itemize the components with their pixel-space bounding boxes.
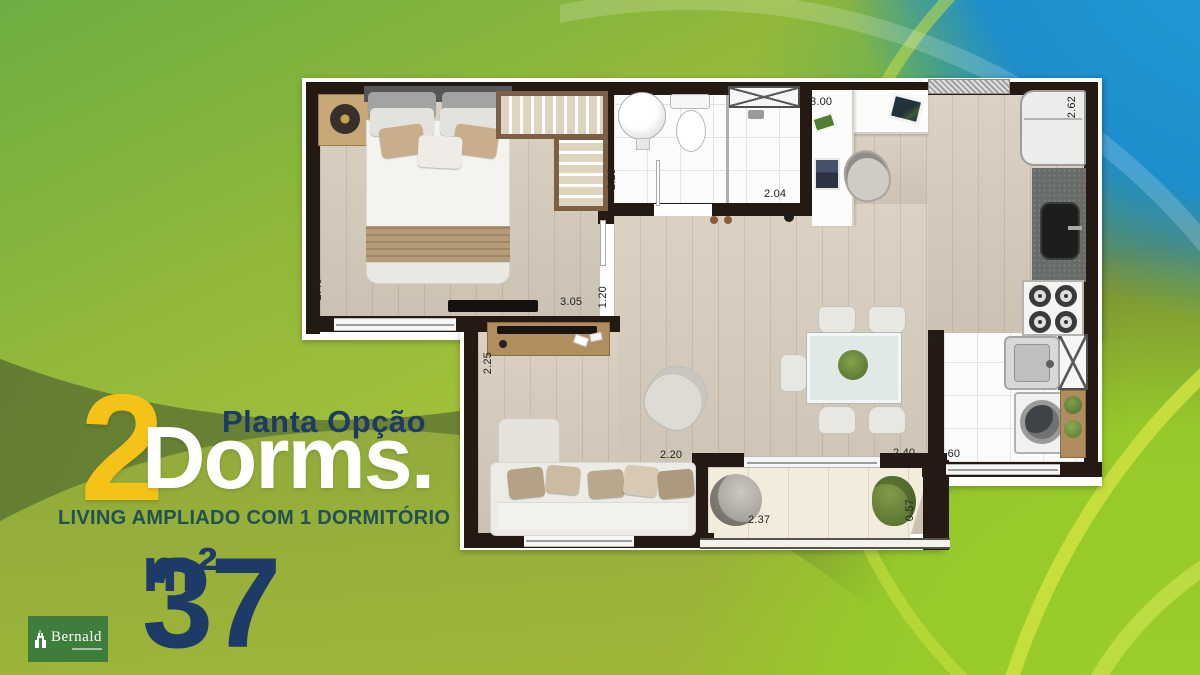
balcony-railing [700,538,950,549]
laundry-shaft [1058,334,1088,390]
bathroom-shaft [728,86,800,108]
door-knob [710,216,718,224]
dimension-label: 1.38 [928,336,940,358]
wall-right [1084,82,1098,474]
dimension-label: 2.40 [893,447,915,459]
dining-chair [818,406,856,434]
balcony-sliding-door [744,456,880,468]
refrigerator-divider [1024,118,1082,120]
dimension-label: 1.20 [597,286,609,308]
kitchen-sink [1040,202,1080,260]
sofa-pillow [623,464,660,497]
laundry-sliding-door [946,464,1060,475]
brand-logo: Bernald [28,616,108,662]
dimension-label: 3.00 [810,96,832,108]
dining-chair [868,406,906,434]
sofa-pillow [657,468,695,499]
brand-tagline-bar [72,648,102,650]
stove-burner [1055,285,1077,307]
poster: 2.40 3.05 1.20 1.19 2.04 3.00 2.62 2.25 … [0,0,1200,675]
dimension-label: 2.62 [1066,96,1078,118]
floor-drain [784,212,794,222]
headline-word: Dorms. [142,414,433,502]
toilet-tank [670,94,710,109]
dimension-label: 2.40 [312,278,324,300]
shower-glass [726,95,729,203]
brand-name: Bernald [51,629,102,645]
dimension-label: 0.57 [904,499,916,521]
tank-faucet [1046,360,1054,368]
sink-pedestal [636,138,650,150]
bedroom-door-leaf [600,220,606,266]
dimension-label: 2.20 [660,449,682,461]
laundry-tank-basin [1014,344,1050,382]
faucet [1068,226,1082,230]
dimension-label: 3.05 [560,296,582,308]
dimension-label: 2.25 [482,352,494,374]
bathroom-door-leaf [656,160,660,206]
dining-chair [780,354,808,392]
dimension-label: 1.60 [938,448,960,460]
bathroom-sink [618,92,666,140]
dimension-label: 1.19 [606,168,618,190]
area-unit: m² [142,540,218,602]
potted-plant [1064,420,1082,438]
dimension-label: 2.04 [764,188,786,200]
brand-text-wrap: Bernald [51,628,102,650]
sofa-seat [498,502,688,530]
building-icon [34,630,47,648]
kitchen-window [928,79,1010,94]
sofa-pillow [587,469,625,499]
wardrobe-side [554,135,608,211]
laptop [814,158,840,190]
washer-door [1020,400,1064,444]
bathroom-door-gap [654,204,712,216]
sofa-pillow [545,465,581,496]
dining-chair [818,306,856,334]
door-knob [724,216,732,224]
potted-plant [1064,396,1082,414]
stove-burner [1029,285,1051,307]
stove-burner [1055,311,1077,333]
dimension-label: 2.37 [748,514,770,526]
stove-burner [1029,311,1051,333]
centerpiece-plant [838,350,868,380]
toilet-bowl [676,110,706,152]
headline-block: Planta Opção 2 Dorms. LIVING AMPLIADO CO… [0,0,520,675]
shower-head [748,110,764,119]
dining-chair [868,306,906,334]
